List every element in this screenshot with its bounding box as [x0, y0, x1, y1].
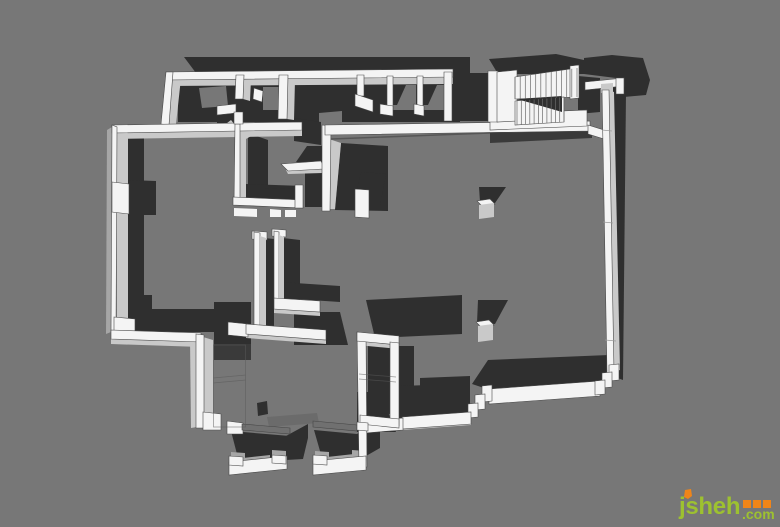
svg-text:.com: .com	[742, 506, 775, 522]
